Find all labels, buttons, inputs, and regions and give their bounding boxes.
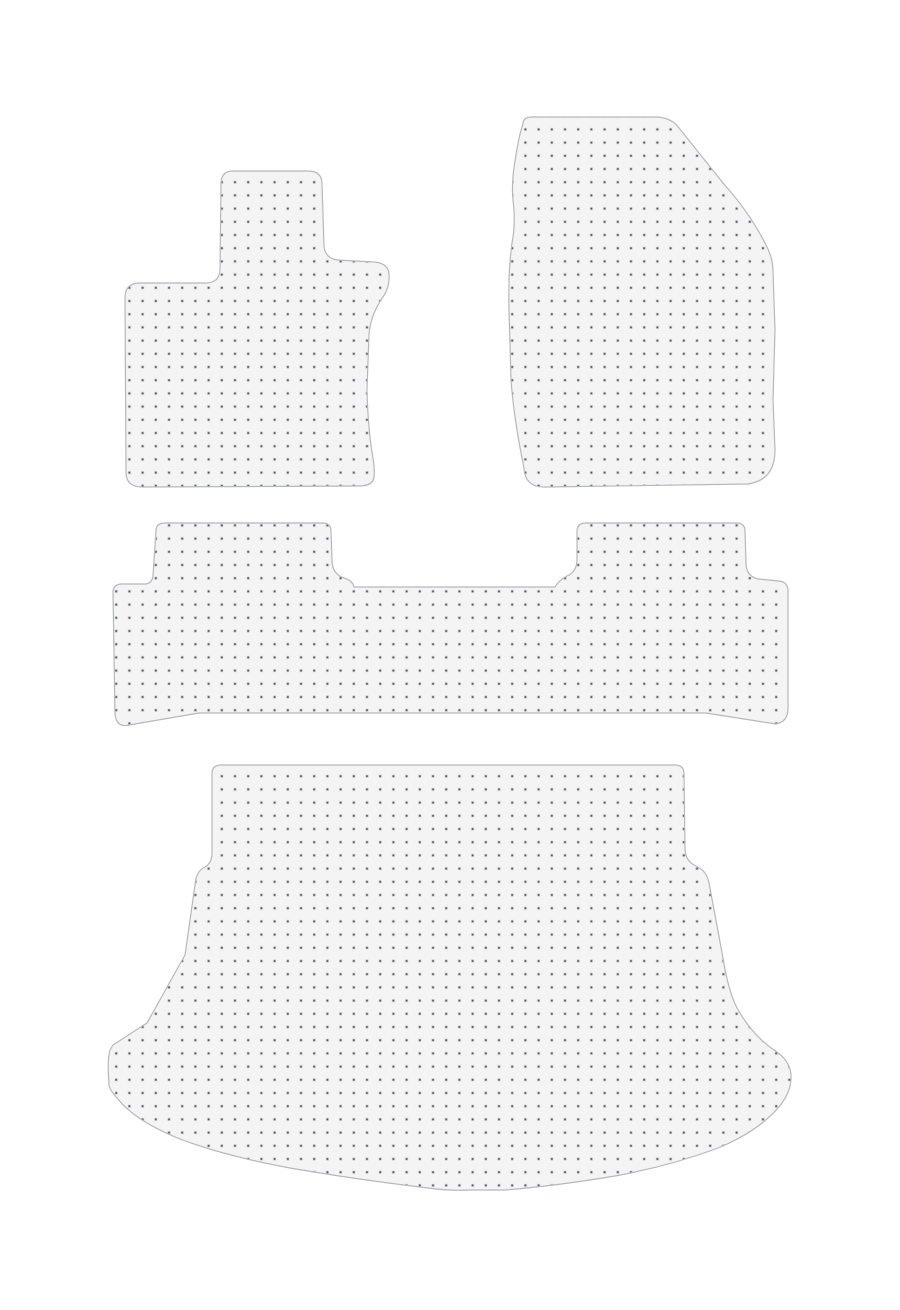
floor-mat-set-illustration bbox=[0, 0, 900, 1310]
product-image-canvas bbox=[0, 0, 900, 1310]
